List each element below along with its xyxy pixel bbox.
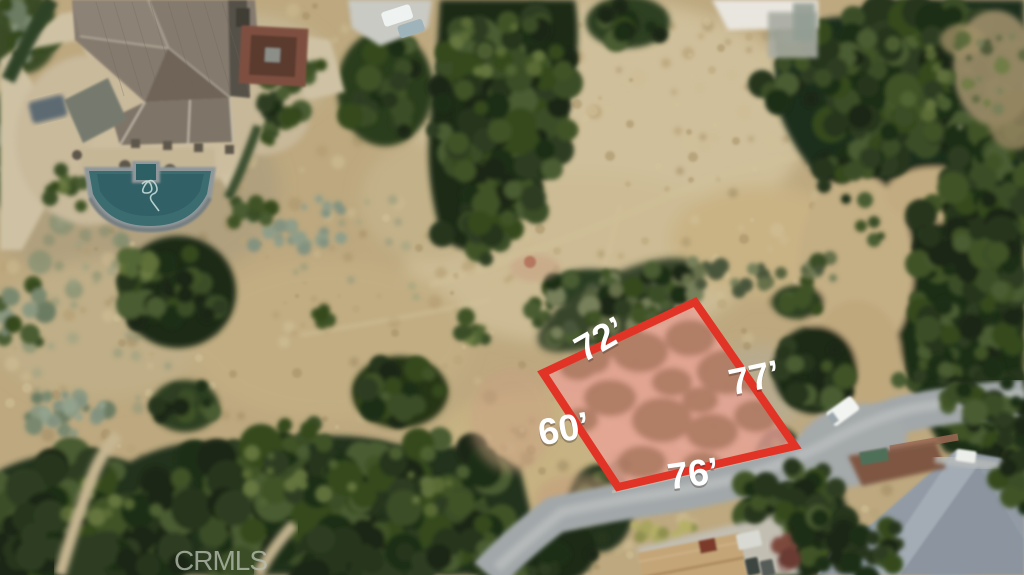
svg-text:76’: 76’ (665, 450, 722, 498)
svg-text:CRMLS: CRMLS (174, 545, 267, 575)
